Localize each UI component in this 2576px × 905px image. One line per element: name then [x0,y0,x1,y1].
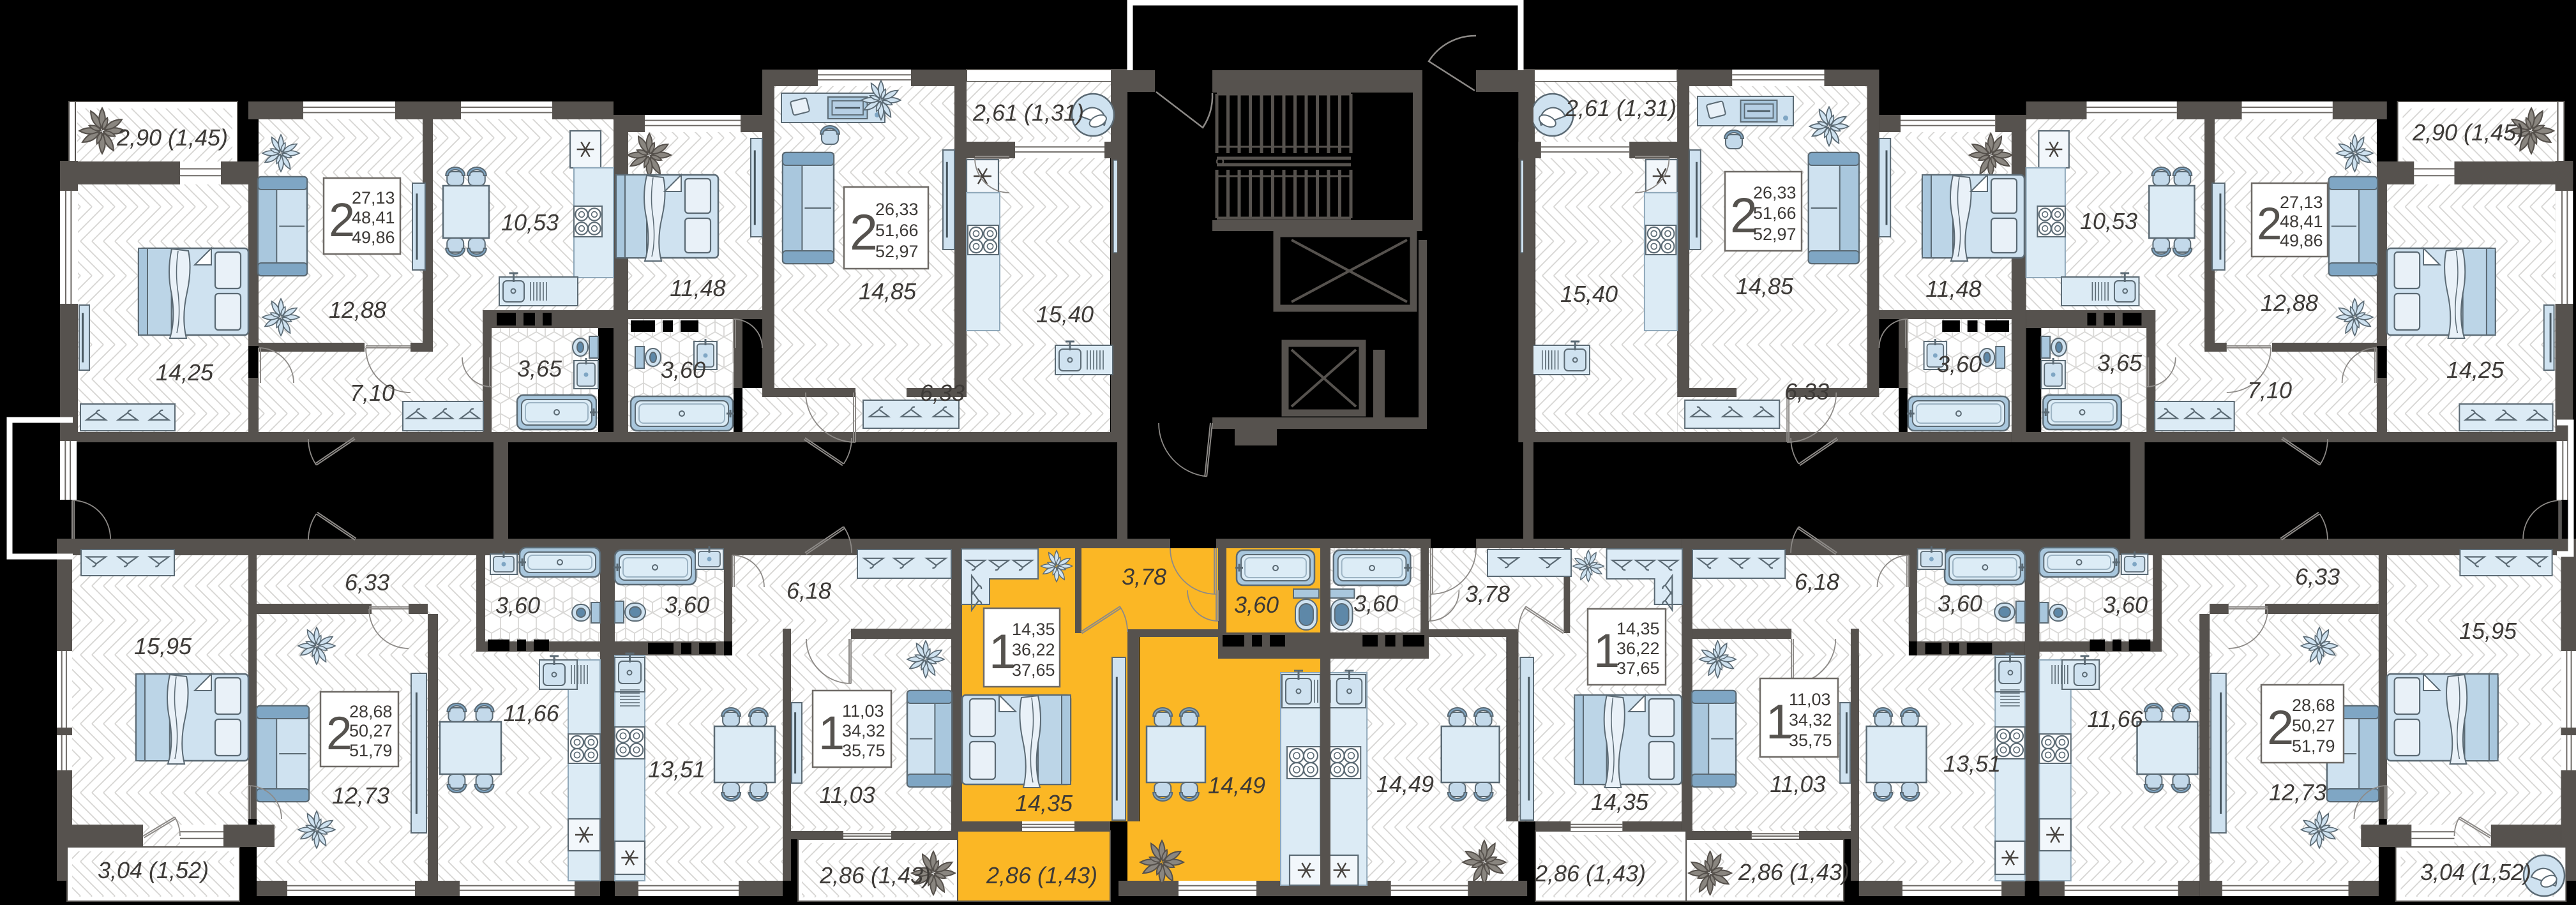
svg-text:27,13: 27,13 [352,188,395,207]
svg-text:50,27: 50,27 [349,721,393,740]
svg-text:35,75: 35,75 [1789,731,1832,750]
svg-text:3,60: 3,60 [1937,351,1982,377]
svg-text:15,95: 15,95 [134,633,192,659]
svg-text:14,49: 14,49 [1376,771,1434,797]
svg-text:12,88: 12,88 [329,297,386,323]
svg-text:34,32: 34,32 [842,721,885,740]
svg-text:2: 2 [2257,199,2282,250]
svg-text:11,03: 11,03 [1770,771,1825,797]
svg-text:12,73: 12,73 [332,782,389,809]
svg-text:36,22: 36,22 [1616,639,1660,658]
svg-text:7,10: 7,10 [2247,377,2292,403]
svg-text:36,22: 36,22 [1012,640,1055,659]
svg-text:48,41: 48,41 [2280,212,2323,231]
svg-text:1: 1 [818,707,845,759]
svg-text:3,60: 3,60 [2103,592,2148,618]
svg-text:10,53: 10,53 [501,209,559,236]
svg-text:48,41: 48,41 [352,208,395,227]
svg-text:35,75: 35,75 [842,741,885,760]
svg-text:51,66: 51,66 [875,221,919,240]
svg-text:37,65: 37,65 [1012,661,1055,680]
svg-text:27,13: 27,13 [2280,193,2323,212]
svg-text:3,04 (1,52): 3,04 (1,52) [2420,859,2531,885]
svg-text:26,33: 26,33 [875,200,919,219]
svg-text:14,49: 14,49 [1208,772,1265,798]
svg-text:2,90 (1,45): 2,90 (1,45) [2412,119,2524,146]
svg-text:11,03: 11,03 [1789,690,1831,709]
svg-text:2,86 (1,43): 2,86 (1,43) [1738,859,1849,885]
svg-text:11,48: 11,48 [670,275,725,301]
svg-text:28,68: 28,68 [2292,696,2335,715]
svg-text:11,66: 11,66 [503,700,559,726]
svg-text:37,65: 37,65 [1616,659,1660,678]
svg-text:3,65: 3,65 [2097,350,2143,376]
svg-text:12,88: 12,88 [2261,290,2318,316]
svg-text:50,27: 50,27 [2292,716,2335,735]
svg-text:52,97: 52,97 [875,242,919,261]
svg-text:10,53: 10,53 [2080,208,2137,234]
svg-text:13,51: 13,51 [1943,751,2001,777]
svg-text:49,86: 49,86 [352,228,395,247]
svg-text:14,85: 14,85 [859,278,917,304]
svg-text:2: 2 [326,708,352,759]
svg-text:2,86 (1,43): 2,86 (1,43) [986,862,1097,888]
svg-text:2: 2 [329,193,355,246]
svg-text:6,18: 6,18 [1795,569,1839,595]
svg-text:2,86 (1,43): 2,86 (1,43) [819,862,931,888]
svg-text:3,60: 3,60 [1353,590,1398,617]
svg-text:49,86: 49,86 [2280,231,2323,250]
svg-text:6,18: 6,18 [787,578,831,604]
svg-text:3,60: 3,60 [495,592,540,618]
svg-text:2: 2 [2267,701,2294,755]
svg-text:11,48: 11,48 [1925,276,1981,302]
svg-text:3,60: 3,60 [1938,590,1982,617]
svg-text:15,40: 15,40 [1036,301,1094,327]
svg-text:11,03: 11,03 [842,701,884,721]
svg-text:2,61 (1,31): 2,61 (1,31) [972,100,1084,126]
svg-text:3,65: 3,65 [517,355,562,382]
svg-text:14,35: 14,35 [1012,620,1055,639]
svg-text:14,35: 14,35 [1591,789,1649,815]
svg-text:15,95: 15,95 [2459,618,2517,644]
svg-text:2,61 (1,31): 2,61 (1,31) [1565,95,1676,121]
svg-text:6,33: 6,33 [1784,378,1829,405]
svg-text:51,66: 51,66 [1753,204,1796,223]
svg-text:11,03: 11,03 [819,782,875,808]
svg-text:6,33: 6,33 [2295,564,2340,590]
svg-text:6,33: 6,33 [345,569,389,595]
svg-text:51,79: 51,79 [2292,737,2335,756]
svg-text:26,33: 26,33 [1753,183,1796,202]
svg-text:14,25: 14,25 [2446,357,2504,383]
svg-text:3,60: 3,60 [661,357,705,383]
svg-text:13,51: 13,51 [648,756,705,782]
svg-text:15,40: 15,40 [1560,281,1618,307]
svg-text:3,60: 3,60 [1234,592,1279,618]
svg-text:28,68: 28,68 [349,702,393,721]
svg-text:1: 1 [1593,624,1620,677]
svg-text:3,78: 3,78 [1465,581,1510,607]
svg-text:14,35: 14,35 [1015,790,1073,816]
svg-text:2: 2 [850,204,878,260]
svg-text:3,78: 3,78 [1122,564,1166,590]
svg-text:3,04 (1,52): 3,04 (1,52) [98,857,209,883]
svg-text:12,73: 12,73 [2269,779,2326,805]
svg-text:2,90 (1,45): 2,90 (1,45) [116,124,228,151]
svg-text:34,32: 34,32 [1789,710,1832,729]
svg-text:6,33: 6,33 [920,380,965,406]
svg-text:7,10: 7,10 [350,380,395,406]
svg-text:3,60: 3,60 [665,592,709,618]
svg-text:14,25: 14,25 [156,359,214,385]
svg-text:52,97: 52,97 [1753,225,1796,244]
svg-text:14,85: 14,85 [1736,273,1794,299]
svg-text:2,86 (1,43): 2,86 (1,43) [1534,860,1646,886]
svg-text:14,35: 14,35 [1616,619,1660,638]
svg-text:51,79: 51,79 [349,741,393,760]
svg-text:11,66: 11,66 [2087,706,2143,732]
